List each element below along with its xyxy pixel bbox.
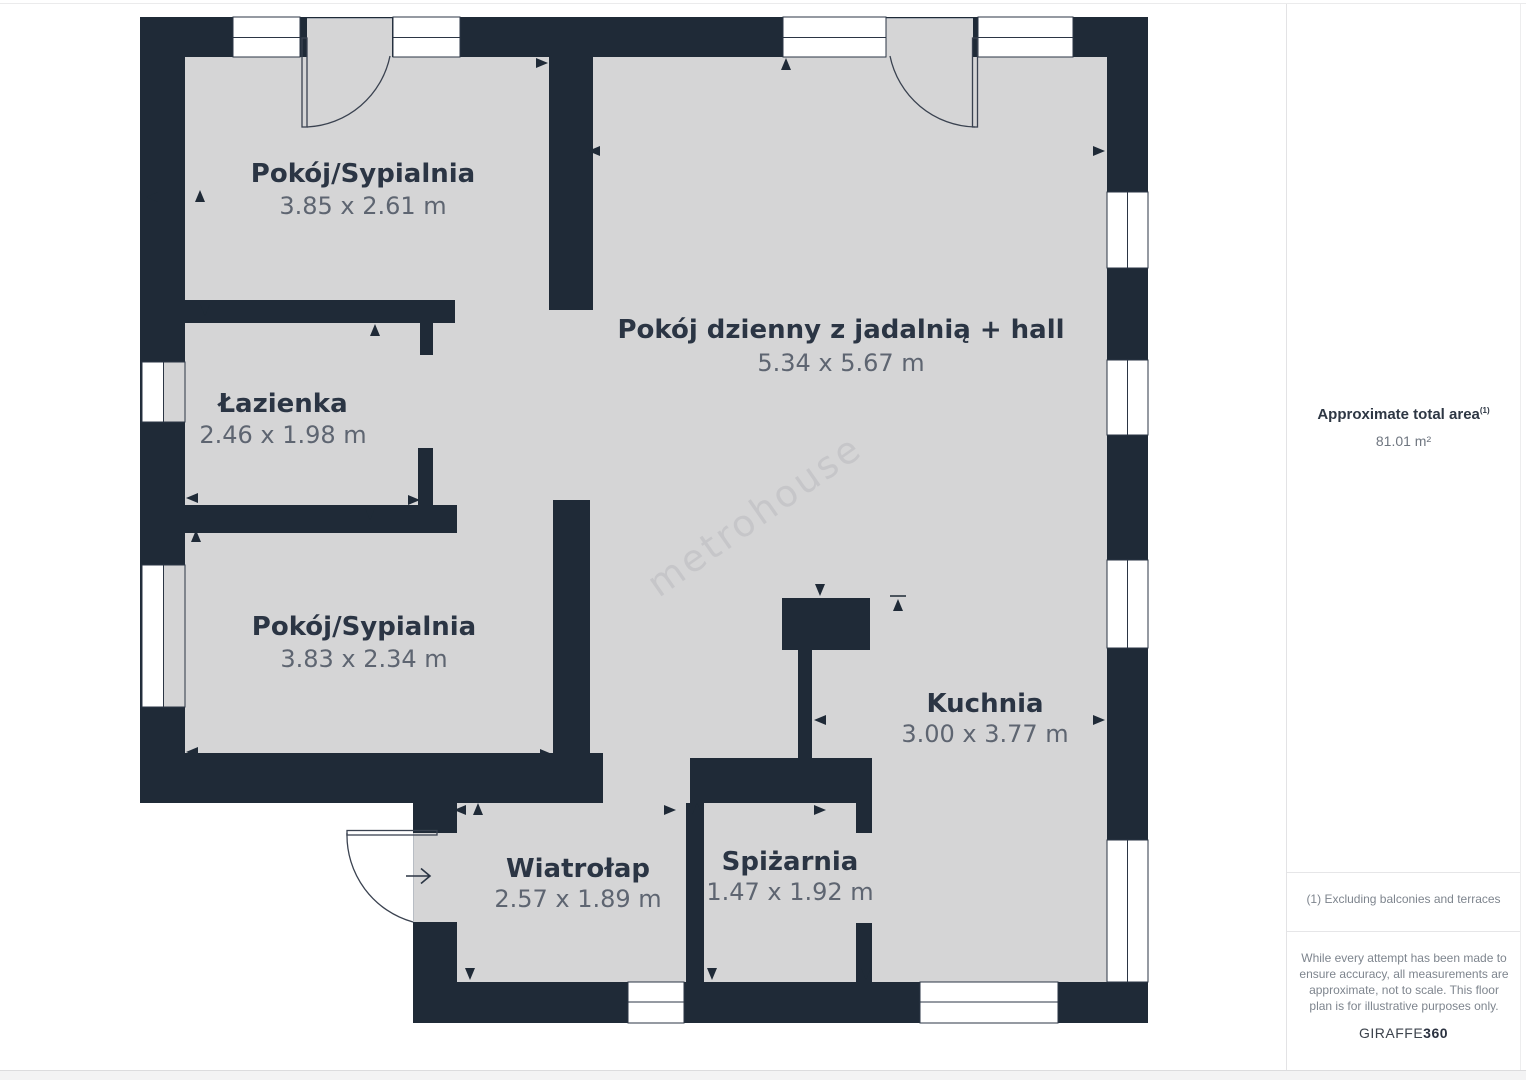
svg-text:3.83 x 2.34 m: 3.83 x 2.34 m [280,645,447,673]
total-area-label: Approximate total area(1) [1287,406,1520,423]
svg-text:2.57 x 1.89 m: 2.57 x 1.89 m [494,885,661,913]
svg-text:Kuchnia: Kuchnia [926,689,1043,719]
brand-logo: GIRAFFE360 [1287,1025,1520,1041]
right-edge-line [1520,4,1521,1070]
disclaimer-text: While every attempt has been made to ens… [1299,950,1509,1014]
bottom-strip [0,1071,1526,1080]
svg-text:5.34 x 5.67 m: 5.34 x 5.67 m [757,349,924,377]
sidebar-divider-2 [1287,931,1520,932]
floor-plan-svg: metrohouse [0,0,1285,1080]
svg-text:3.00 x 3.77 m: 3.00 x 3.77 m [901,720,1068,748]
floor-plan-page: metrohouse [0,0,1526,1080]
svg-text:Wiatrołap: Wiatrołap [506,854,650,884]
brand-suffix: 360 [1423,1025,1448,1041]
svg-text:Łazienka: Łazienka [216,389,347,419]
sidebar-divider-1 [1287,872,1520,873]
footnote-text: (1) Excluding balconies and terraces [1287,892,1520,906]
svg-text:3.85 x 2.61 m: 3.85 x 2.61 m [279,192,446,220]
svg-text:2.46 x 1.98 m: 2.46 x 1.98 m [199,421,366,449]
svg-text:Pokój/Sypialnia: Pokój/Sypialnia [252,612,476,642]
svg-text:1.47 x 1.92 m: 1.47 x 1.92 m [706,878,873,906]
svg-text:Pokój dzienny z jadalnią + hal: Pokój dzienny z jadalnią + hall [617,315,1064,345]
total-area-value: 81.01 m² [1287,433,1520,449]
room-label-vestibule: Wiatrołap 2.57 x 1.89 m [494,854,661,913]
sidebar: Approximate total area(1) 81.01 m² (1) E… [1286,4,1520,1070]
total-area-text: Approximate total area [1317,406,1480,423]
total-area-footnote-marker: (1) [1480,406,1490,415]
svg-text:Spiżarnia: Spiżarnia [722,847,859,877]
brand-name: GIRAFFE [1359,1025,1423,1041]
room-label-pantry: Spiżarnia 1.47 x 1.92 m [706,847,873,906]
svg-text:Pokój/Sypialnia: Pokój/Sypialnia [251,159,475,189]
total-area-block: Approximate total area(1) 81.01 m² [1287,406,1520,449]
